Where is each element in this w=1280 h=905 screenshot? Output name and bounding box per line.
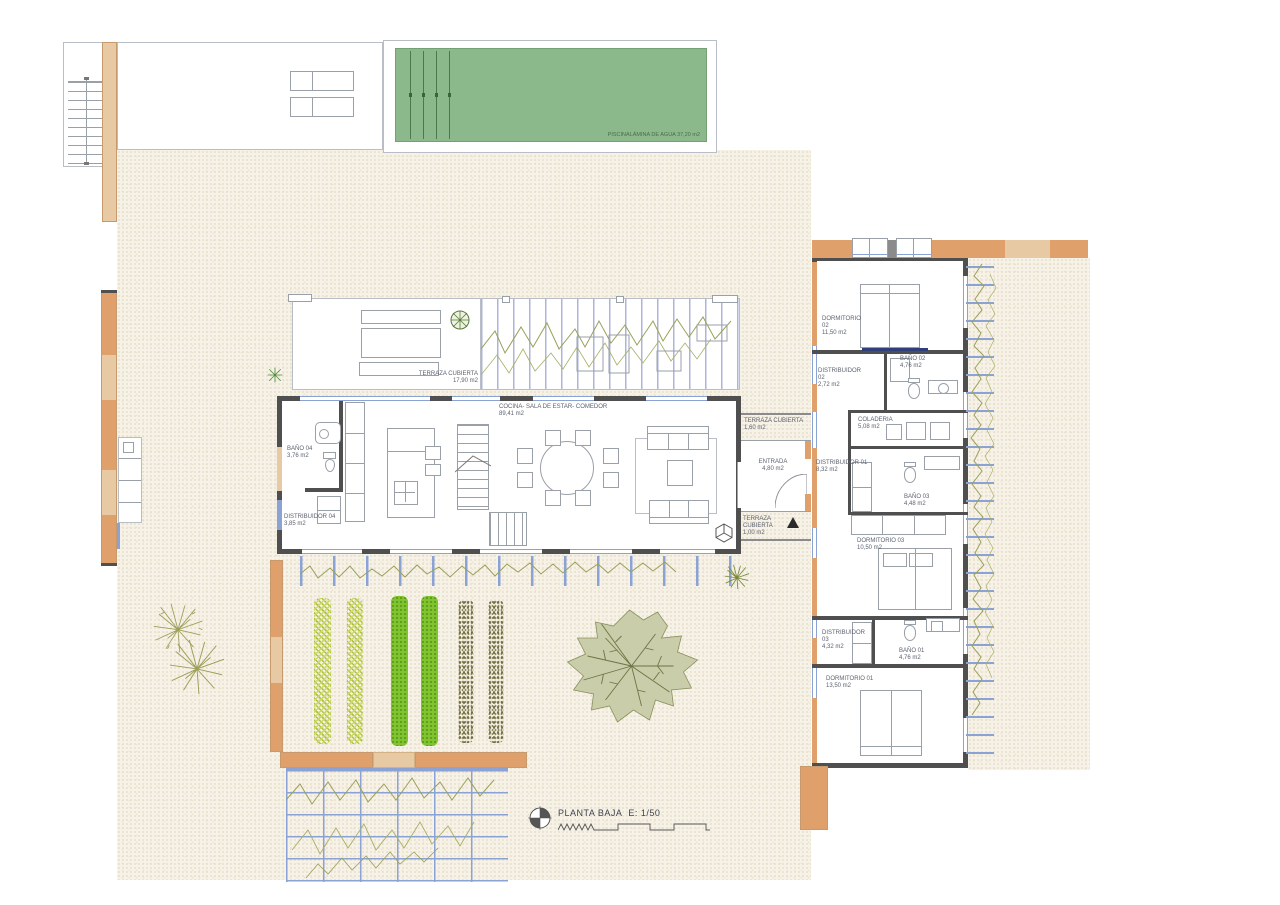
vine-sketch (481, 299, 741, 391)
drawing-shape: TERRAZA CUBIERTA (744, 418, 806, 425)
drawing-shape: 1,60 m2 (744, 425, 806, 432)
entry-post (805, 441, 811, 459)
appliance (906, 422, 926, 440)
partition-wall (339, 401, 343, 489)
drawing-shape (268, 368, 283, 383)
drawing-shape: DISTRIBUIDOR 01 (816, 460, 870, 467)
drawing-shape (914, 515, 946, 535)
garden-row-green (421, 596, 438, 746)
drawing-shape (669, 501, 670, 517)
entry-door-swing (775, 474, 807, 508)
drawing-shape (716, 524, 732, 542)
lounge-chair (290, 71, 354, 91)
drawing-shape: BAÑO 03 (904, 494, 940, 501)
drawing-shape (882, 515, 914, 535)
dining-table (540, 441, 594, 495)
drawing-shape (448, 93, 451, 97)
stair-break-line (455, 454, 491, 474)
partition-wall (848, 410, 968, 413)
room-label-dormitorio01: DORMITORIO 0113,50 m2 (826, 676, 876, 690)
drawing-shape: 2,72 m2 (818, 382, 868, 389)
drawing-shape: TERRAZA CUBIERTA (408, 371, 478, 378)
drawing-shape (931, 621, 943, 632)
drawing-shape: 3,76 m2 (287, 453, 327, 460)
drawing-shape (451, 311, 469, 329)
pool-surround: PISCINALÁMINA DE AGUA 37,20 m2 (383, 40, 717, 153)
drawing-shape (346, 493, 364, 494)
room-label-entrada: ENTRADA4,80 m2 (741, 459, 805, 473)
room-label-bano01: BAÑO 014,76 m2 (899, 648, 935, 662)
pergola-north (480, 298, 740, 390)
partition-wall (884, 354, 887, 412)
boundary-wall-north (932, 240, 1005, 258)
boundary-wall-southeast (800, 766, 828, 830)
dining-chair (545, 490, 561, 506)
sofa (647, 426, 709, 450)
garden-row-green (391, 596, 408, 746)
drawing-shape (422, 93, 425, 97)
drawing-shape (971, 264, 984, 715)
floor-plan-canvas: PISCINALÁMINA DE AGUA 37,20 m2 (0, 0, 1280, 905)
drawing-shape (724, 564, 750, 590)
dining-chair (575, 430, 591, 446)
drawing-shape (449, 309, 471, 331)
window (533, 396, 594, 401)
window (390, 549, 452, 554)
outdoor-table (361, 310, 441, 324)
drawing-shape: 8,32 m2 (816, 467, 870, 474)
dining-chair (575, 490, 591, 506)
drawing-shape: LÁMINA DE AGUA 37,20 m2 (630, 132, 700, 138)
drawing-shape (741, 539, 811, 541)
sliding-door (277, 500, 282, 530)
roof-window (852, 238, 888, 258)
boundary-wall-south (415, 752, 527, 768)
drawing-shape (292, 822, 474, 854)
dining-chair (603, 448, 619, 464)
drawing-shape (266, 366, 284, 384)
drawing-shape (861, 746, 921, 747)
room-label-distribuidor04: DISTRIBUIDOR 043,85 m2 (284, 514, 338, 528)
drawing-shape (119, 480, 141, 481)
drawing-shape (909, 553, 933, 567)
drawing-shape: 4,80 m2 (741, 466, 805, 473)
double-bed (860, 284, 920, 348)
toilet (325, 459, 335, 472)
wall-orange (812, 638, 817, 664)
lounge-chair (290, 97, 354, 117)
drawing-shape (119, 458, 141, 459)
double-bed (878, 548, 952, 610)
vanity (926, 618, 960, 632)
drawing-shape (435, 93, 438, 97)
pergola-post (616, 296, 624, 303)
small-shrub-olive (724, 564, 750, 590)
toilet (904, 467, 916, 483)
drawing-shape (319, 429, 329, 439)
drawing-shape (346, 463, 364, 464)
drawing-shape: 89,41 m2 (499, 411, 629, 418)
drawing-shape (853, 487, 871, 488)
pergola-post (288, 294, 312, 302)
kitchen-sink (425, 464, 441, 476)
drawing-shape: COLADERIA (858, 417, 900, 424)
drawing-shape (168, 638, 226, 696)
window (812, 528, 817, 558)
cooktop (394, 481, 418, 505)
dining-chair (603, 472, 619, 488)
drawing-shape (883, 553, 907, 567)
boundary-wall-northwest (102, 42, 117, 222)
wall-tan-segment (102, 355, 116, 400)
drawing-shape (306, 848, 438, 878)
drawing-shape (481, 317, 731, 353)
potted-plant (449, 309, 471, 331)
entry-step-arrow-icon (787, 517, 799, 528)
drawing-shape: BAÑO 04 (287, 446, 327, 453)
drawing-shape: DORMITORIO 03 (857, 538, 907, 545)
entry-post (805, 494, 811, 511)
drawing-shape: DORMITORIO 02 (822, 316, 868, 330)
wall-tan-segment (102, 470, 116, 515)
vanity (924, 456, 960, 470)
window (570, 549, 632, 554)
drawing-shape (657, 351, 681, 371)
roof-window (896, 238, 932, 258)
graphic-scale-bar (558, 820, 710, 834)
drawing-shape (861, 293, 919, 294)
wall-tan-segment (277, 447, 282, 491)
toilet (908, 383, 920, 399)
drawing-shape (915, 549, 916, 609)
boundary-wall-west (101, 290, 117, 566)
partition-wall (812, 664, 968, 668)
pergola-post (502, 296, 510, 303)
drawing-shape: BAÑO 02 (900, 356, 936, 363)
garden-row-olive (458, 600, 474, 743)
wall-orange (812, 262, 817, 346)
drawing-shape (455, 456, 491, 472)
wall-tan-segment (271, 637, 282, 683)
room-label-distribuidor03: DISTRIBUIDOR 034,32 m2 (822, 630, 872, 651)
drawing-shape: 3,85 m2 (284, 521, 338, 528)
drawing-shape (668, 433, 669, 449)
dining-chair (517, 472, 533, 488)
room-label-cocina: COCINA- SALA DE ESTAR- COMEDOR89,41 m2 (499, 404, 629, 418)
plan-title: PLANTA BAJA E: 1/50 (558, 808, 660, 818)
living-pavilion: COCINA- SALA DE ESTAR- COMEDOR89,41 m2 B… (277, 396, 741, 554)
drawing-shape (650, 517, 708, 518)
staircase-lower-run (489, 512, 527, 546)
boundary-wall-north (1050, 240, 1088, 258)
pool-label: PISCINALÁMINA DE AGUA 37,20 m2 (580, 132, 700, 139)
drawing-shape (688, 501, 689, 517)
drawing-shape: 11,50 m2 (822, 330, 868, 337)
drawing-shape (312, 98, 313, 116)
drawing-shape (170, 640, 224, 694)
drawing-shape: 17,90 m2 (408, 378, 478, 385)
pergola-grid-south (286, 768, 508, 882)
window (812, 664, 817, 698)
drawing-shape (985, 274, 996, 678)
entry-connector: TERRAZA CUBIERTA1,60 m2 ENTRADA4,80 m2 T… (741, 413, 811, 541)
garden-row-yellowgreen (347, 598, 363, 744)
drawing-shape: 4,32 m2 (822, 644, 872, 651)
drawing-shape (84, 162, 89, 165)
wall-tick (101, 290, 117, 293)
pool-deck (117, 42, 383, 150)
room-label-distribuidor01: DISTRIBUIDOR 018,32 m2 (816, 460, 870, 474)
room-label-dormitorio02: DORMITORIO 0211,50 m2 (822, 316, 868, 337)
utility-box (118, 437, 142, 523)
kitchen-counter (345, 402, 365, 522)
boundary-wall-north-tan (1005, 240, 1050, 258)
tree-canopy (565, 608, 700, 726)
drawing-shape (530, 818, 540, 828)
partition-wall (848, 446, 968, 449)
drawing-shape: BAÑO 01 (899, 648, 935, 655)
bedroom-wing: DORMITORIO 0211,50 m2 DISTRIBUIDOR 022,7… (812, 256, 968, 768)
room-label-coladeria: COLADERIA5,08 m2 (858, 417, 900, 431)
vine-south-facade (300, 560, 740, 586)
window (646, 396, 707, 401)
garden-row-olive (488, 600, 504, 743)
small-shrub (266, 366, 284, 384)
drawing-shape (648, 433, 708, 434)
wall-orange (812, 558, 817, 616)
drawing-shape (170, 640, 224, 694)
drawing-shape (300, 562, 676, 578)
drawing-shape (409, 93, 412, 97)
drawing-shape: 13,50 m2 (826, 683, 876, 690)
partition-wall (872, 620, 875, 664)
side-gate (117, 523, 120, 549)
north-compass-icon (528, 806, 552, 830)
wall-post (888, 240, 896, 258)
vine-east (968, 264, 1002, 764)
drawing-shape (853, 254, 887, 255)
room-label-distribuidor02: DISTRIBUIDOR 022,72 m2 (818, 368, 868, 389)
vanity (928, 380, 958, 394)
window (480, 549, 542, 554)
toilet (904, 625, 916, 641)
wall-orange (812, 698, 817, 763)
wall-tick (101, 563, 117, 566)
axis-cube-icon (713, 522, 735, 544)
drawing-shape (558, 824, 710, 830)
dining-chair (517, 448, 533, 464)
grass-plant (168, 638, 226, 696)
drawing-shape: DORMITORIO 01 (826, 676, 876, 683)
room-label-bano04: BAÑO 043,76 m2 (287, 446, 327, 460)
boundary-wall-north (812, 240, 852, 258)
terrace-entry-south: TERRAZA CUBIERTA1,00 m2 (741, 511, 811, 539)
drawing-shape (851, 515, 883, 535)
drawing-shape: PISCINA (608, 132, 630, 138)
drawing-shape: ENTRADA (741, 459, 805, 466)
drawing-shape (312, 72, 313, 90)
partition-wall (305, 488, 343, 492)
drawing-shape (346, 433, 364, 434)
drawing-shape: 10,50 m2 (857, 545, 907, 552)
drawing-shape (528, 806, 552, 830)
wardrobe-row (852, 515, 946, 535)
terrace-entry-north: TERRAZA CUBIERTA1,60 m2 (741, 415, 811, 441)
drawing-shape (123, 442, 134, 453)
drawing-shape: COCINA- SALA DE ESTAR- COMEDOR (499, 404, 629, 411)
window (302, 549, 362, 554)
drawing-shape (775, 474, 807, 508)
room-label-terraza-entry-n: TERRAZA CUBIERTA1,60 m2 (744, 418, 806, 432)
drawing-shape: 4,76 m2 (900, 363, 936, 370)
drawing-shape (318, 510, 340, 511)
drawing-shape (286, 778, 494, 804)
window (452, 396, 500, 401)
drawing-shape (119, 502, 141, 503)
drawing-shape: DISTRIBUIDOR 02 (818, 368, 868, 382)
drawing-shape (86, 79, 87, 165)
appliance (930, 422, 950, 440)
wall (812, 763, 968, 768)
drawing-shape (889, 285, 890, 347)
double-bed (860, 690, 922, 756)
drawing-shape: DISTRIBUIDOR 03 (822, 630, 872, 644)
dining-chair (545, 430, 561, 446)
sofa (649, 500, 709, 524)
boundary-wall-south (280, 752, 373, 768)
drawing-shape (481, 339, 711, 375)
drawing-shape: E: 1/50 (628, 808, 660, 818)
room-label-terraza-norte: TERRAZA CUBIERTA17,90 m2 (408, 371, 478, 385)
bathtub (315, 422, 341, 444)
pergola-post (712, 295, 738, 303)
coffee-table (667, 460, 693, 486)
drawing-shape (897, 254, 931, 255)
drawing-shape: 1,00 m2 (743, 530, 795, 537)
drawing-shape (540, 808, 550, 818)
kitchen-sink (425, 446, 441, 460)
room-label-dormitorio03: DORMITORIO 0310,50 m2 (857, 538, 907, 552)
window (812, 412, 817, 448)
drawing-shape (395, 492, 415, 493)
pool-water: PISCINALÁMINA DE AGUA 37,20 m2 (395, 48, 707, 142)
drawing-shape (938, 383, 949, 394)
room-label-bano02: BAÑO 024,76 m2 (900, 356, 936, 370)
window (300, 396, 430, 401)
drawing-shape: 5,08 m2 (858, 424, 900, 431)
wall-orange (812, 384, 817, 412)
drawing-shape (688, 433, 689, 449)
drawing-shape: PLANTA BAJA (558, 808, 622, 818)
window (660, 549, 715, 554)
room-label-bano03: BAÑO 034,48 m2 (904, 494, 940, 508)
drawing-shape (725, 565, 749, 589)
drawing-shape: 4,76 m2 (899, 655, 935, 662)
vine-sketch (286, 770, 508, 882)
boundary-wall-south-tan (373, 752, 415, 768)
drawing-shape: DISTRIBUIDOR 04 (284, 514, 338, 521)
drawing-shape (84, 77, 89, 80)
drawing-shape: 4,48 m2 (904, 501, 940, 508)
sliding-door (862, 348, 928, 351)
outdoor-table (361, 328, 441, 358)
garden-row-yellowgreen (314, 598, 331, 744)
